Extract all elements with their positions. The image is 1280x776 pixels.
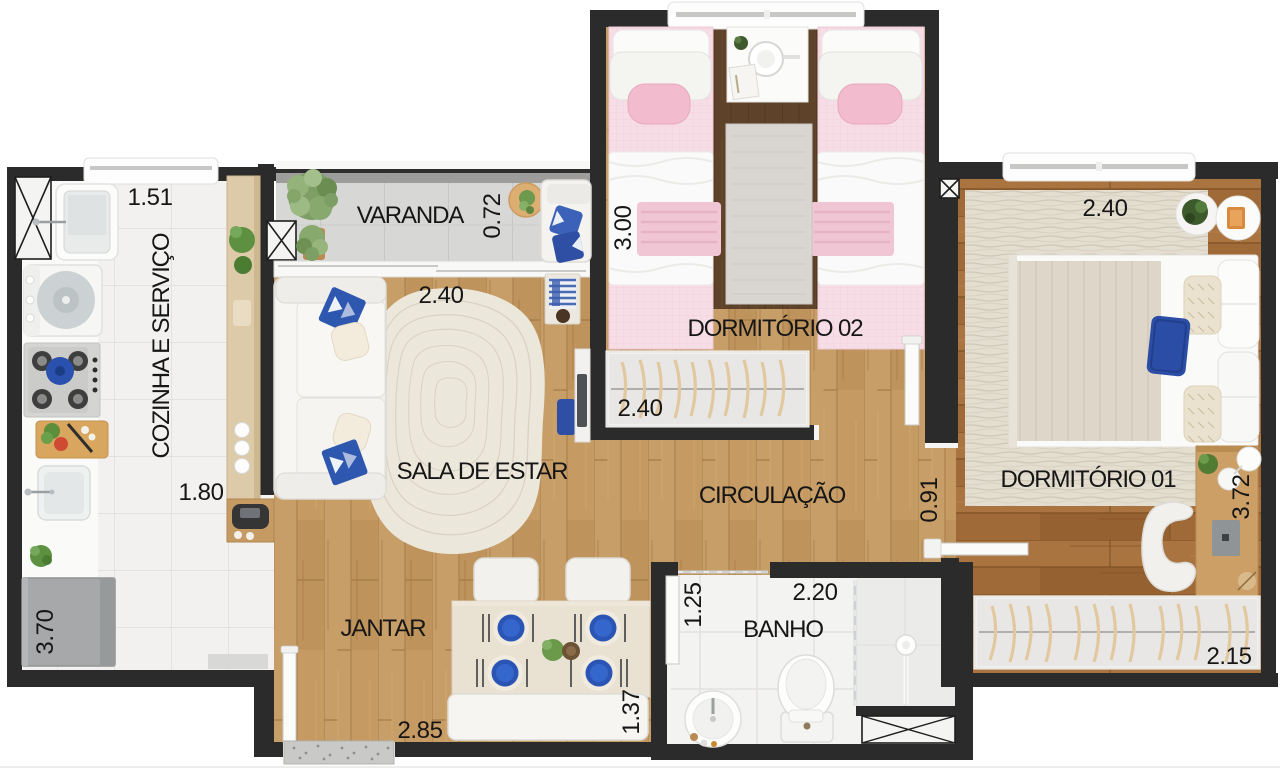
svg-text:2.40: 2.40 [418, 282, 463, 309]
svg-text:DORMITÓRIO 01: DORMITÓRIO 01 [1000, 466, 1176, 493]
svg-text:1.80: 1.80 [178, 479, 223, 506]
svg-text:SALA DE ESTAR: SALA DE ESTAR [397, 458, 568, 485]
svg-text:2.20: 2.20 [792, 579, 837, 606]
svg-text:DORMITÓRIO 02: DORMITÓRIO 02 [687, 315, 863, 342]
svg-text:COZINHA E SERVIÇO: COZINHA E SERVIÇO [148, 233, 175, 458]
svg-text:2.85: 2.85 [397, 717, 442, 744]
svg-text:0.91: 0.91 [916, 477, 943, 522]
svg-text:1.37: 1.37 [618, 689, 645, 734]
svg-text:3.70: 3.70 [32, 609, 59, 654]
svg-text:2.40: 2.40 [617, 395, 662, 422]
svg-text:JANTAR: JANTAR [341, 615, 427, 642]
svg-text:CIRCULAÇÃO: CIRCULAÇÃO [699, 482, 846, 509]
svg-text:1.51: 1.51 [127, 184, 172, 211]
svg-text:3.00: 3.00 [610, 205, 637, 250]
svg-text:1.25: 1.25 [680, 582, 707, 627]
svg-text:2.40: 2.40 [1082, 195, 1127, 222]
svg-text:VARANDA: VARANDA [357, 202, 465, 229]
svg-text:2.15: 2.15 [1206, 643, 1251, 670]
svg-text:3.72: 3.72 [1228, 474, 1255, 519]
svg-text:BANHO: BANHO [743, 616, 823, 643]
svg-text:0.72: 0.72 [479, 193, 506, 238]
